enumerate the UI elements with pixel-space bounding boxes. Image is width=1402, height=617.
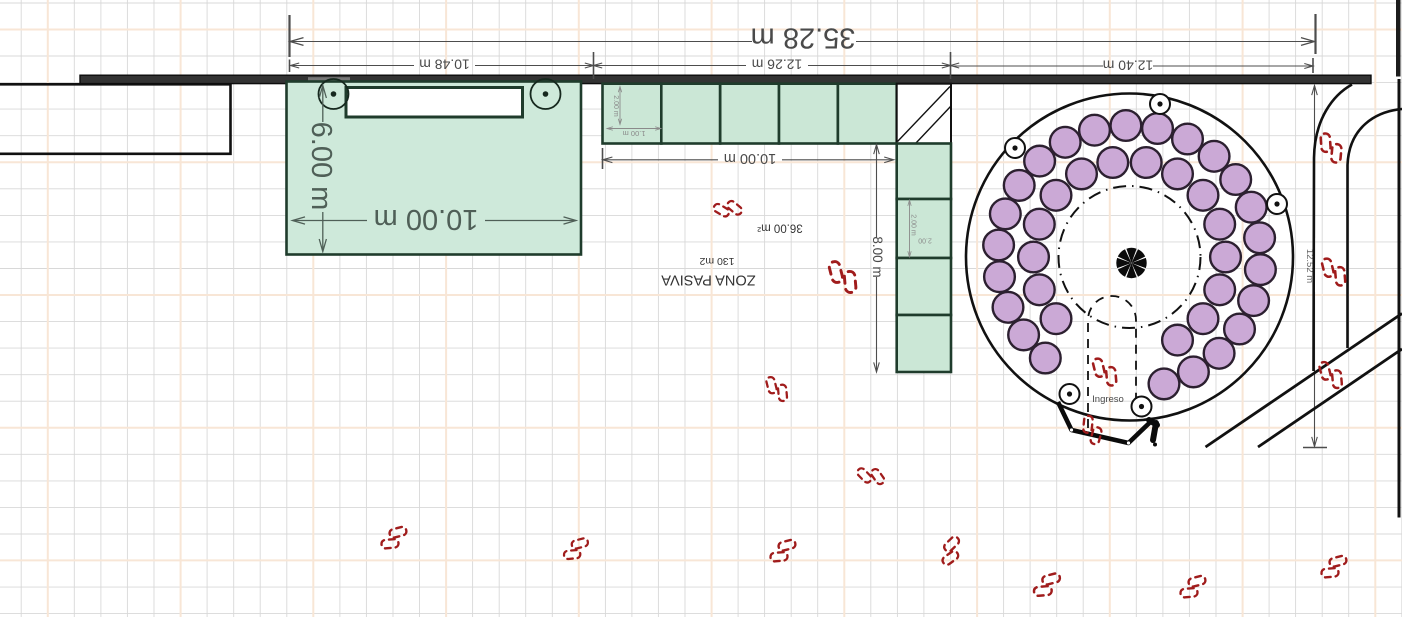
svg-text:6.00 m: 6.00 m — [305, 122, 337, 211]
svg-text:8.00 m: 8.00 m — [870, 236, 885, 277]
svg-text:2.00 m: 2.00 m — [910, 214, 917, 236]
svg-text:130 m2: 130 m2 — [699, 255, 734, 267]
svg-text:2.00: 2.00 — [918, 237, 932, 244]
svg-text:12.26 m: 12.26 m — [752, 57, 803, 73]
svg-text:Ingreso: Ingreso — [1092, 394, 1124, 405]
svg-text:35.28 m: 35.28 m — [751, 21, 856, 53]
svg-text:1.00 m: 1.00 m — [623, 129, 646, 138]
svg-text:12.40 m: 12.40 m — [1103, 58, 1154, 74]
svg-text:10.00 m: 10.00 m — [724, 150, 776, 166]
svg-text:2.00 m: 2.00 m — [612, 95, 619, 117]
svg-text:ZONA PASIVA: ZONA PASIVA — [661, 271, 756, 287]
svg-text:10.00 m: 10.00 m — [374, 203, 479, 235]
svg-text:36.00 m²: 36.00 m² — [757, 221, 803, 233]
svg-text:10.48 m: 10.48 m — [419, 57, 470, 73]
